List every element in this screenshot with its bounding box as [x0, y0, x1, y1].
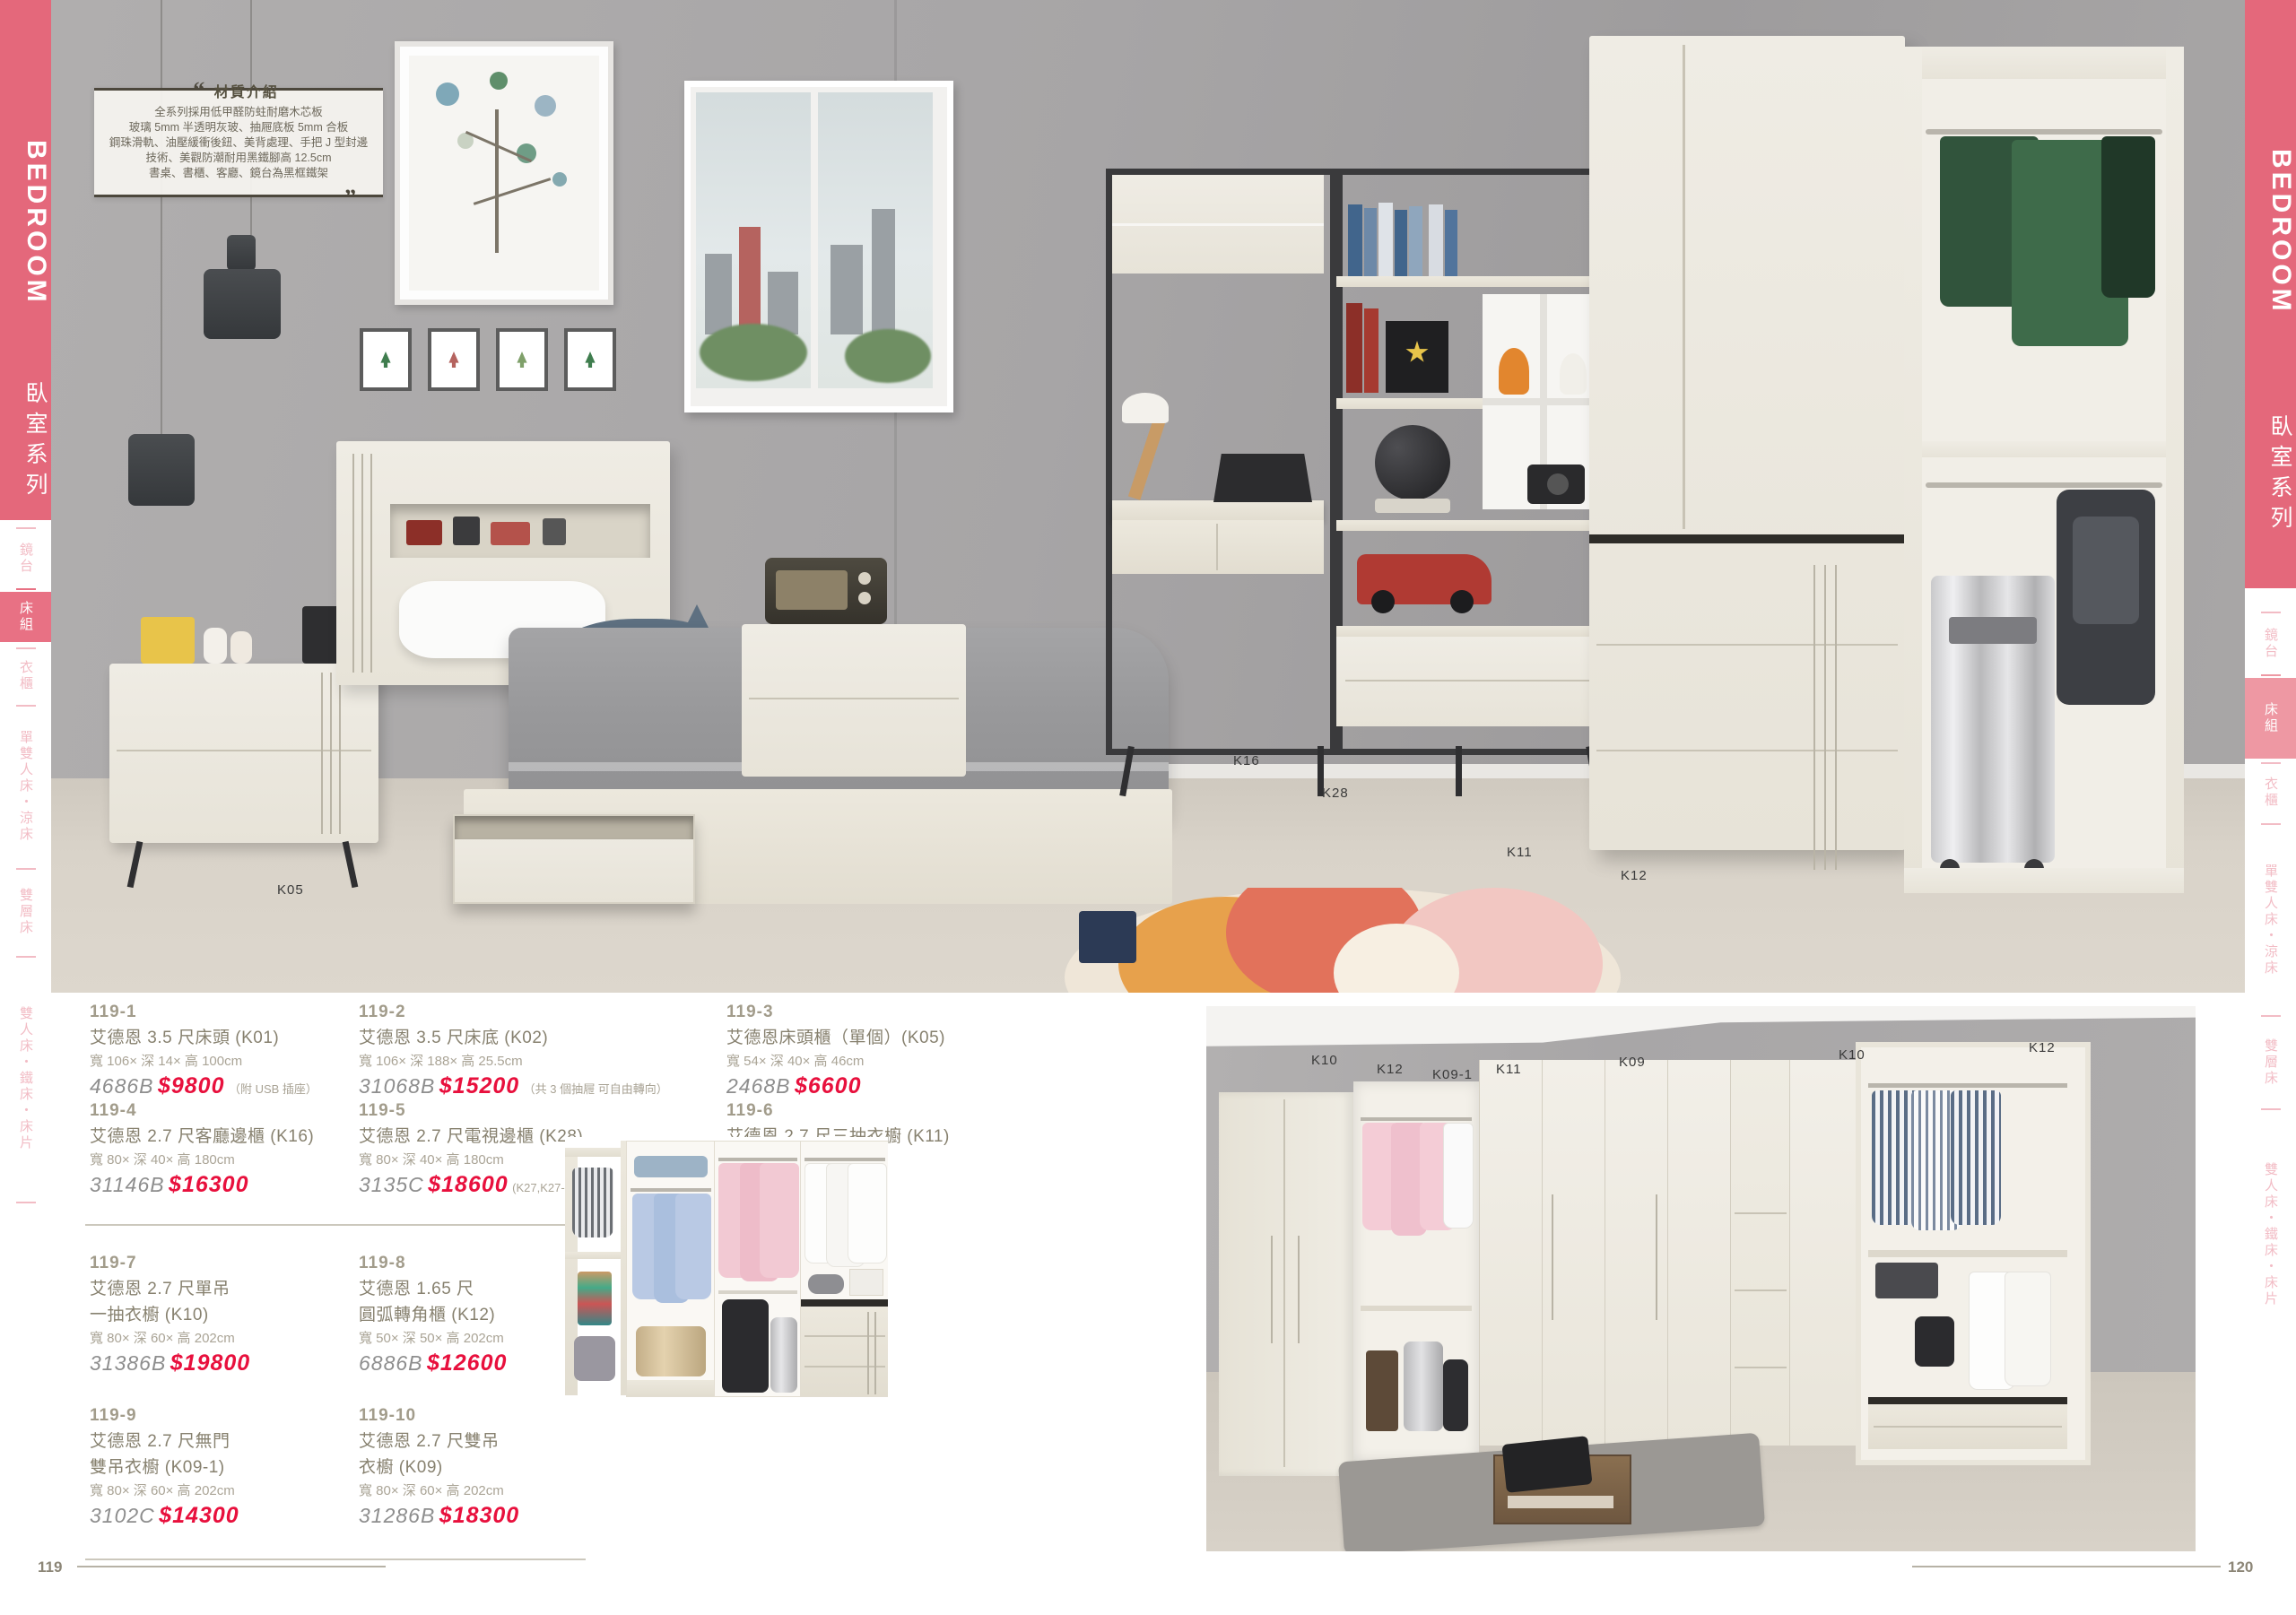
product-number: 119-3: [726, 1003, 996, 1022]
tab-divider: [2261, 612, 2281, 613]
figurine: [204, 628, 227, 664]
bottom-drawer: [1868, 1404, 2067, 1449]
tab-divider: [16, 527, 36, 529]
material-line: 鋼珠滑軌、油壓緩衝後鈕、美背處理、手把 J 型封邊: [98, 135, 379, 151]
door-seam: [1283, 1099, 1285, 1467]
window: [684, 81, 953, 412]
desk-drawer: [1112, 520, 1324, 574]
crate-label: [1508, 1496, 1613, 1508]
product-price: $19800: [170, 1350, 250, 1376]
desk-lamp-shade: [1122, 393, 1169, 423]
desk-hutch: [1112, 175, 1324, 274]
groove: [352, 454, 354, 673]
toy: [406, 520, 442, 545]
shelf: [1868, 1250, 2067, 1257]
product-code: 3135C: [359, 1173, 424, 1196]
material-line: 玻璃 5mm 半透明灰玻、抽屜底板 5mm 合板: [98, 120, 379, 135]
product-name: 艾德恩 2.7 尺單吊: [90, 1275, 359, 1299]
tab-divider: [16, 868, 36, 870]
desk-shelf-unit: [1106, 169, 1612, 798]
groove: [370, 454, 372, 673]
backpack: [2057, 490, 2155, 705]
product-dims: 寬 106× 深 188× 高 25.5cm: [359, 1051, 717, 1070]
product-dims: 寬 80× 深 60× 高 202cm: [90, 1480, 359, 1499]
product-name: 艾德恩 3.5 尺床頭 (K01): [90, 1024, 359, 1048]
tab-divider: [2261, 1015, 2281, 1017]
photo-label-k09-1: K09-1: [1432, 1067, 1473, 1082]
photo-label-k12-2: K12: [2029, 1040, 2056, 1055]
corner-wardrobe-photo: K10 K12 K09-1 K11 K09 K10 K12: [1206, 1006, 2196, 1551]
toy-car: [1357, 554, 1492, 604]
groove: [321, 673, 323, 834]
sidebar-tab-singledouble-bed: 單雙人床・涼床: [0, 710, 51, 863]
tab-divider: [2261, 762, 2281, 764]
white-shirt: [2005, 1272, 2051, 1386]
toy: [543, 518, 566, 545]
product-price: $15200: [439, 1073, 519, 1098]
photo-label-k09: K09: [1619, 1055, 1646, 1070]
right-banner-strip: BEDROOM 臥室系列 鏡台 床組 衣櫃 單雙人床・涼床 雙層床 雙人床・鐵床…: [2245, 0, 2296, 1615]
white-shirt: [848, 1163, 887, 1263]
sidebar-tab-mirror: 鏡台: [0, 534, 51, 583]
shelf: [1336, 626, 1605, 637]
tree: [845, 329, 931, 383]
pendant-lamp: [204, 269, 281, 339]
groove: [1813, 565, 1815, 870]
building: [705, 254, 732, 334]
tree-icon: [379, 352, 392, 368]
shelf: [1361, 1306, 1472, 1311]
material-line: 技術、美觀防潮耐用黑鐵腳高 12.5cm: [98, 151, 379, 166]
radio-knob: [858, 592, 871, 604]
tab-divider: [16, 588, 36, 590]
top-panel: [565, 1148, 621, 1157]
mini-frame: [428, 328, 480, 391]
material-line: 書桌、書櫃、客廳、鏡台為黑框鐵架: [98, 166, 379, 181]
lamp-cord: [161, 0, 162, 434]
mini-frame: [564, 328, 616, 391]
bottom-drawer: [627, 1380, 715, 1396]
tab-divider: [16, 956, 36, 958]
folded-blanket: [634, 1156, 708, 1177]
figurine-orange: [1499, 348, 1529, 395]
award-box: [1386, 321, 1448, 393]
photo-label-k12: K12: [1621, 868, 1648, 883]
book: [1429, 204, 1443, 276]
product-number: 119-2: [359, 1003, 717, 1022]
book: [1378, 203, 1393, 276]
section-divider: [85, 1224, 586, 1226]
storage-basket: [849, 1269, 883, 1296]
wheel: [1371, 590, 1395, 613]
product-priceline: 31286B $18300: [359, 1503, 628, 1529]
camera-lens: [1547, 473, 1569, 495]
clothes-rail: [1926, 129, 2162, 135]
window-pane: [696, 92, 811, 388]
photo-label-k10: K10: [1311, 1053, 1338, 1068]
backpack-pocket: [2073, 517, 2139, 624]
drawer-column: [1730, 1060, 1790, 1446]
globe: [1375, 425, 1450, 500]
material-lines: 全系列採用低甲醛防蛀耐磨木芯板 玻璃 5mm 半透明灰玻、抽屜底板 5mm 合板…: [98, 105, 379, 181]
groove: [361, 454, 363, 673]
handle-groove: [1271, 1236, 1273, 1343]
wardrobe-run: [1479, 1060, 1856, 1446]
photo-label-k12: K12: [1377, 1062, 1404, 1077]
product-price: $6600: [795, 1073, 862, 1098]
book-red: [1346, 303, 1362, 393]
black-suitcase: [722, 1299, 769, 1393]
art-branch: [474, 178, 552, 205]
product-dims: 寬 106× 深 14× 高 100cm: [90, 1051, 359, 1070]
sidebar-tab-wardrobe: 衣櫃: [0, 653, 51, 699]
black-handbag: [1915, 1316, 1954, 1367]
drawer-seam: [1874, 1426, 2062, 1428]
book: [1445, 210, 1457, 276]
pendant-lamp-top: [227, 235, 256, 271]
product-name: 艾德恩 2.7 尺雙吊: [359, 1428, 628, 1452]
product-name: 艾德恩 2.7 尺客廳邊櫃 (K16): [90, 1123, 359, 1147]
tree-icon: [516, 352, 528, 368]
drawer-seam: [1596, 750, 1898, 751]
door-panel: [1542, 1060, 1605, 1446]
shelf-drawer-cabinet: [1336, 637, 1605, 726]
art-trunk: [495, 109, 499, 253]
wardrobe-detail-photo: [565, 1137, 888, 1402]
main-room-photo: “ 材質介紹 全系列採用低甲醛防蛀耐磨木芯板 玻璃 5mm 半透明灰玻、抽屜底板…: [51, 0, 2245, 993]
dark-tshirt: [2101, 136, 2155, 298]
product-code: 31386B: [90, 1351, 166, 1375]
suitcase-lock: [1949, 617, 2037, 644]
product-name-line2: 雙吊衣櫥 (K09-1): [90, 1454, 359, 1478]
sidebar-tab-double-iron-bed: 雙人床・鐵床・床片: [0, 961, 51, 1196]
product-note: （共 3 個抽屜 可自由轉向）: [524, 1082, 668, 1096]
drawer-chest: [801, 1307, 888, 1396]
radio-grille: [776, 570, 848, 610]
wardrobe-k11: [1589, 36, 1905, 850]
toy-chair: [141, 617, 195, 664]
building: [739, 227, 761, 334]
art-leaf: [436, 82, 459, 106]
vintage-radio: [765, 558, 887, 624]
silver-suitcase-small: [770, 1317, 797, 1393]
product-119-9: 119-9 艾德恩 2.7 尺無門 雙吊衣櫥 (K09-1) 寬 80× 深 6…: [90, 1406, 359, 1529]
clothes-rail-2: [1926, 482, 2162, 488]
pink-shirt: [760, 1163, 799, 1278]
blue-shirt: [675, 1194, 711, 1299]
book-red: [1364, 308, 1378, 393]
product-price: $12600: [427, 1350, 507, 1376]
drawer-seam: [1345, 680, 1596, 682]
product-name-line2: 衣櫥 (K09): [359, 1454, 628, 1478]
open-quote-icon: “: [193, 77, 204, 103]
photo-label-k28: K28: [1322, 786, 1349, 801]
material-title: 材質介紹: [209, 80, 284, 101]
product-number: 119-7: [90, 1254, 359, 1273]
side-cabinet: [742, 624, 966, 777]
drawer-seam: [749, 698, 959, 699]
product-priceline: 4686B $9800 （附 USB 插座）: [90, 1073, 359, 1099]
product-dims: 寬 54× 深 40× 高 46cm: [726, 1051, 996, 1070]
toy: [453, 517, 480, 545]
camera: [1527, 465, 1585, 504]
globe-base: [1375, 499, 1450, 513]
series-vertical-subtitle: 臥室系列: [0, 375, 51, 509]
figurine: [230, 631, 252, 664]
close-quote-icon: ”: [344, 189, 356, 207]
rail: [1361, 1117, 1472, 1121]
drawer-seam: [117, 750, 371, 751]
tv-box: [1875, 1263, 1938, 1298]
door-panel: [1605, 1060, 1668, 1446]
product-code: 31286B: [359, 1504, 435, 1527]
sidebar-tab-double-iron-bed: 雙人床・鐵床・床片: [2245, 1116, 2296, 1354]
tab-divider: [16, 647, 36, 649]
silver-suitcase: [1404, 1341, 1443, 1431]
product-119-10: 119-10 艾德恩 2.7 尺雙吊 衣櫥 (K09) 寬 80× 深 60× …: [359, 1406, 628, 1529]
radio-knob: [858, 572, 871, 585]
drawer-seam: [1596, 644, 1898, 646]
black-trim: [1868, 1397, 2067, 1404]
towel-roll: [808, 1274, 844, 1294]
drawer-seam: [1216, 524, 1218, 570]
product-code: 31068B: [359, 1074, 435, 1098]
rail: [631, 1188, 711, 1192]
product-number: 119-9: [90, 1406, 359, 1426]
unit-b: [714, 1141, 802, 1397]
art-leaf: [535, 95, 556, 117]
door-seam: [1683, 45, 1685, 529]
product-number: 119-5: [359, 1101, 700, 1121]
groove: [330, 673, 332, 834]
striped-shirt: [1951, 1090, 2001, 1225]
product-119-3: 119-3 艾德恩床頭櫃（單個）(K05) 寬 54× 深 40× 高 46cm…: [726, 1003, 996, 1099]
bedroom-vertical-title: BEDROOM: [0, 79, 51, 366]
shelf: [1336, 276, 1605, 287]
striped-shirt: [572, 1168, 613, 1237]
series-vertical-subtitle: 臥室系列: [2245, 408, 2296, 543]
section-divider: [85, 1559, 586, 1560]
book: [1348, 204, 1362, 276]
gold-suitcase: [636, 1326, 706, 1376]
footer-line-right: [1912, 1566, 2221, 1567]
rug: [1065, 888, 1621, 993]
product-dims: 寬 80× 深 60× 高 202cm: [359, 1480, 628, 1499]
drawer-interior: [455, 816, 693, 839]
tree-icon: [448, 352, 460, 368]
unit-side: [2166, 47, 2184, 893]
rail: [1868, 1083, 2067, 1088]
product-119-2: 119-2 艾德恩 3.5 尺床底 (K02) 寬 106× 深 188× 高 …: [359, 1003, 717, 1099]
product-price: $18600: [428, 1172, 508, 1197]
gray-bag: [574, 1336, 615, 1381]
product-code: 6886B: [359, 1351, 423, 1375]
product-priceline: 31068B $15200 （共 3 個抽屜 可自由轉向）: [359, 1073, 717, 1099]
book: [1409, 206, 1422, 276]
left-banner-strip: BEDROOM 臥室系列 鏡台 床組 衣櫃 單雙人床・涼床 雙層床 雙人床・鐵床…: [0, 0, 51, 1615]
unit-top: [1904, 47, 2184, 79]
silver-suitcase: [1931, 576, 2055, 863]
building: [831, 245, 863, 334]
product-number: 119-10: [359, 1406, 628, 1426]
scarf: [578, 1272, 612, 1325]
product-code: 31146B: [90, 1173, 165, 1196]
photo-label-k11: K11: [1496, 1062, 1522, 1077]
white-garment: [1443, 1123, 1474, 1229]
product-119-4: 119-4 艾德恩 2.7 尺客廳邊櫃 (K16) 寬 80× 深 40× 高 …: [90, 1101, 359, 1198]
window-pane: [818, 92, 933, 388]
sidebar-tab-bedset-active: 床組: [0, 592, 51, 642]
sidebar-tab-bedset-active: 床組: [2245, 678, 2296, 759]
tab-divider: [2261, 1108, 2281, 1110]
product-name: 艾德恩床頭櫃（單個）(K05): [726, 1024, 996, 1048]
product-code: 3102C: [90, 1504, 155, 1527]
shelf: [718, 1290, 797, 1294]
product-code: 4686B: [90, 1074, 154, 1098]
mini-frame: [360, 328, 412, 391]
sidebar-tab-bunk-bed: 雙層床: [2245, 1022, 2296, 1103]
product-price: $18300: [439, 1503, 519, 1528]
door-panel: [1667, 1060, 1731, 1446]
product-priceline: 31386B $19800: [90, 1350, 359, 1376]
mini-frame: [496, 328, 548, 391]
corner-open-unit: [1353, 1081, 1479, 1462]
product-number: 119-6: [726, 1101, 996, 1121]
brown-bag: [1366, 1350, 1398, 1431]
left-wardrobe: [1219, 1092, 1353, 1476]
wall-art-canvas: [409, 56, 599, 291]
photo-label-k11: K11: [1507, 845, 1533, 860]
book: [1364, 208, 1377, 276]
drawer-seam: [1735, 1212, 1787, 1214]
star-icon: [1405, 341, 1429, 364]
material-info-box: “ 材質介紹 全系列採用低甲醛防蛀耐磨木芯板 玻璃 5mm 半透明灰玻、抽屜底板…: [94, 88, 383, 197]
pendant-lamp-2: [128, 434, 195, 506]
drawer-seam: [804, 1335, 885, 1337]
photo-label-k16: K16: [1233, 753, 1260, 768]
unit-base: [1904, 868, 2184, 893]
toy: [491, 522, 530, 545]
tree: [700, 324, 807, 381]
product-name: 艾德恩 3.5 尺床底 (K02): [359, 1024, 717, 1048]
art-leaf: [490, 72, 508, 90]
tab-divider: [2261, 823, 2281, 825]
right-open-unit: [1856, 1042, 2091, 1465]
tab-divider: [16, 705, 36, 707]
rail: [718, 1158, 797, 1161]
groove: [1824, 565, 1826, 870]
product-code: 2468B: [726, 1074, 791, 1098]
handle-groove: [1552, 1194, 1553, 1320]
page-number-left: 119: [38, 1559, 62, 1576]
product-number: 119-4: [90, 1101, 359, 1121]
open-drawer: [453, 814, 695, 904]
product-dims: 寬 80× 深 40× 高 180cm: [90, 1150, 359, 1168]
sidebar-tab-mirror: 鏡台: [2245, 619, 2296, 669]
tab-divider: [16, 1202, 36, 1203]
drawer-seam: [1735, 1289, 1787, 1291]
product-name: 艾德恩 2.7 尺無門: [90, 1428, 359, 1452]
photo-label-k05: K05: [277, 882, 304, 898]
door-panel: [1789, 1060, 1857, 1446]
building: [872, 209, 895, 334]
wheel: [1450, 590, 1474, 613]
black-suitcase: [1443, 1359, 1468, 1431]
product-priceline: 3102C $14300: [90, 1503, 359, 1529]
drawer-seam: [804, 1366, 885, 1368]
handle-groove: [1656, 1194, 1657, 1320]
catalog-page: BEDROOM 臥室系列 鏡台 床組 衣櫃 單雙人床・涼床 雙層床 雙人床・鐵床…: [0, 0, 2296, 1615]
sidebar-tab-bunk-bed: 雙層床: [0, 873, 51, 951]
product-price: $16300: [169, 1172, 248, 1197]
material-line: 全系列採用低甲醛防蛀耐磨木芯板: [98, 105, 379, 120]
navy-box: [1079, 911, 1136, 963]
product-name-line2: 一抽衣櫥 (K10): [90, 1301, 359, 1325]
wall-art-frame: [395, 41, 613, 305]
unit-leg: [1456, 746, 1462, 796]
product-119-1: 119-1 艾德恩 3.5 尺床頭 (K01) 寬 106× 深 14× 高 1…: [90, 1003, 359, 1099]
art-leaf: [552, 172, 567, 187]
wooden-crate: [1493, 1454, 1631, 1524]
photo-label-k10-2: K10: [1839, 1047, 1865, 1063]
black-trim: [1589, 534, 1905, 543]
material-title-row: “ 材質介紹: [94, 80, 383, 101]
hutch-door: [1112, 223, 1324, 226]
shelf: [1336, 520, 1605, 531]
groove: [874, 1312, 876, 1394]
product-priceline: 2468B $6600: [726, 1073, 996, 1099]
page-number-right: 120: [2228, 1559, 2253, 1576]
bedroom-vertical-title: BEDROOM: [2245, 88, 2296, 375]
tree-icon: [584, 352, 596, 368]
product-note: （附 USB 插座）: [229, 1082, 317, 1096]
drawer-seam: [1735, 1367, 1787, 1368]
unit-c: [800, 1141, 888, 1397]
unit-side: [1904, 47, 1922, 893]
product-number: 119-1: [90, 1003, 359, 1022]
book: [1395, 210, 1407, 276]
groove: [867, 1312, 869, 1394]
unit-a: [626, 1141, 716, 1397]
groove: [1835, 565, 1837, 870]
sidebar-tab-wardrobe: 衣櫃: [2245, 768, 2296, 818]
product-price: $9800: [158, 1073, 225, 1098]
open-unit-k12: [1904, 47, 2184, 893]
sidebar-tab-singledouble-bed: 單雙人床・涼床: [2245, 830, 2296, 1010]
door-panel: [1479, 1060, 1543, 1446]
mid-shelf: [1922, 441, 2166, 457]
tab-divider: [2261, 674, 2281, 676]
product-dims: 寬 80× 深 60× 高 202cm: [90, 1328, 359, 1347]
groove: [339, 673, 341, 834]
rail: [804, 1158, 885, 1161]
product-price: $14300: [159, 1503, 239, 1528]
nightstand-k05: [109, 664, 378, 843]
product-priceline: 31146B $16300: [90, 1172, 359, 1198]
laptop: [1213, 454, 1312, 502]
desk-top: [1112, 500, 1324, 520]
headboard-niche: [390, 504, 650, 558]
shelf: [565, 1252, 621, 1259]
black-top-trim: [801, 1299, 888, 1307]
figurine-white: [1560, 353, 1587, 395]
handle-groove: [1298, 1236, 1300, 1343]
product-119-7: 119-7 艾德恩 2.7 尺單吊 一抽衣櫥 (K10) 寬 80× 深 60×…: [90, 1254, 359, 1376]
black-tshirt: [1501, 1436, 1592, 1493]
footer-line-left: [77, 1566, 386, 1567]
